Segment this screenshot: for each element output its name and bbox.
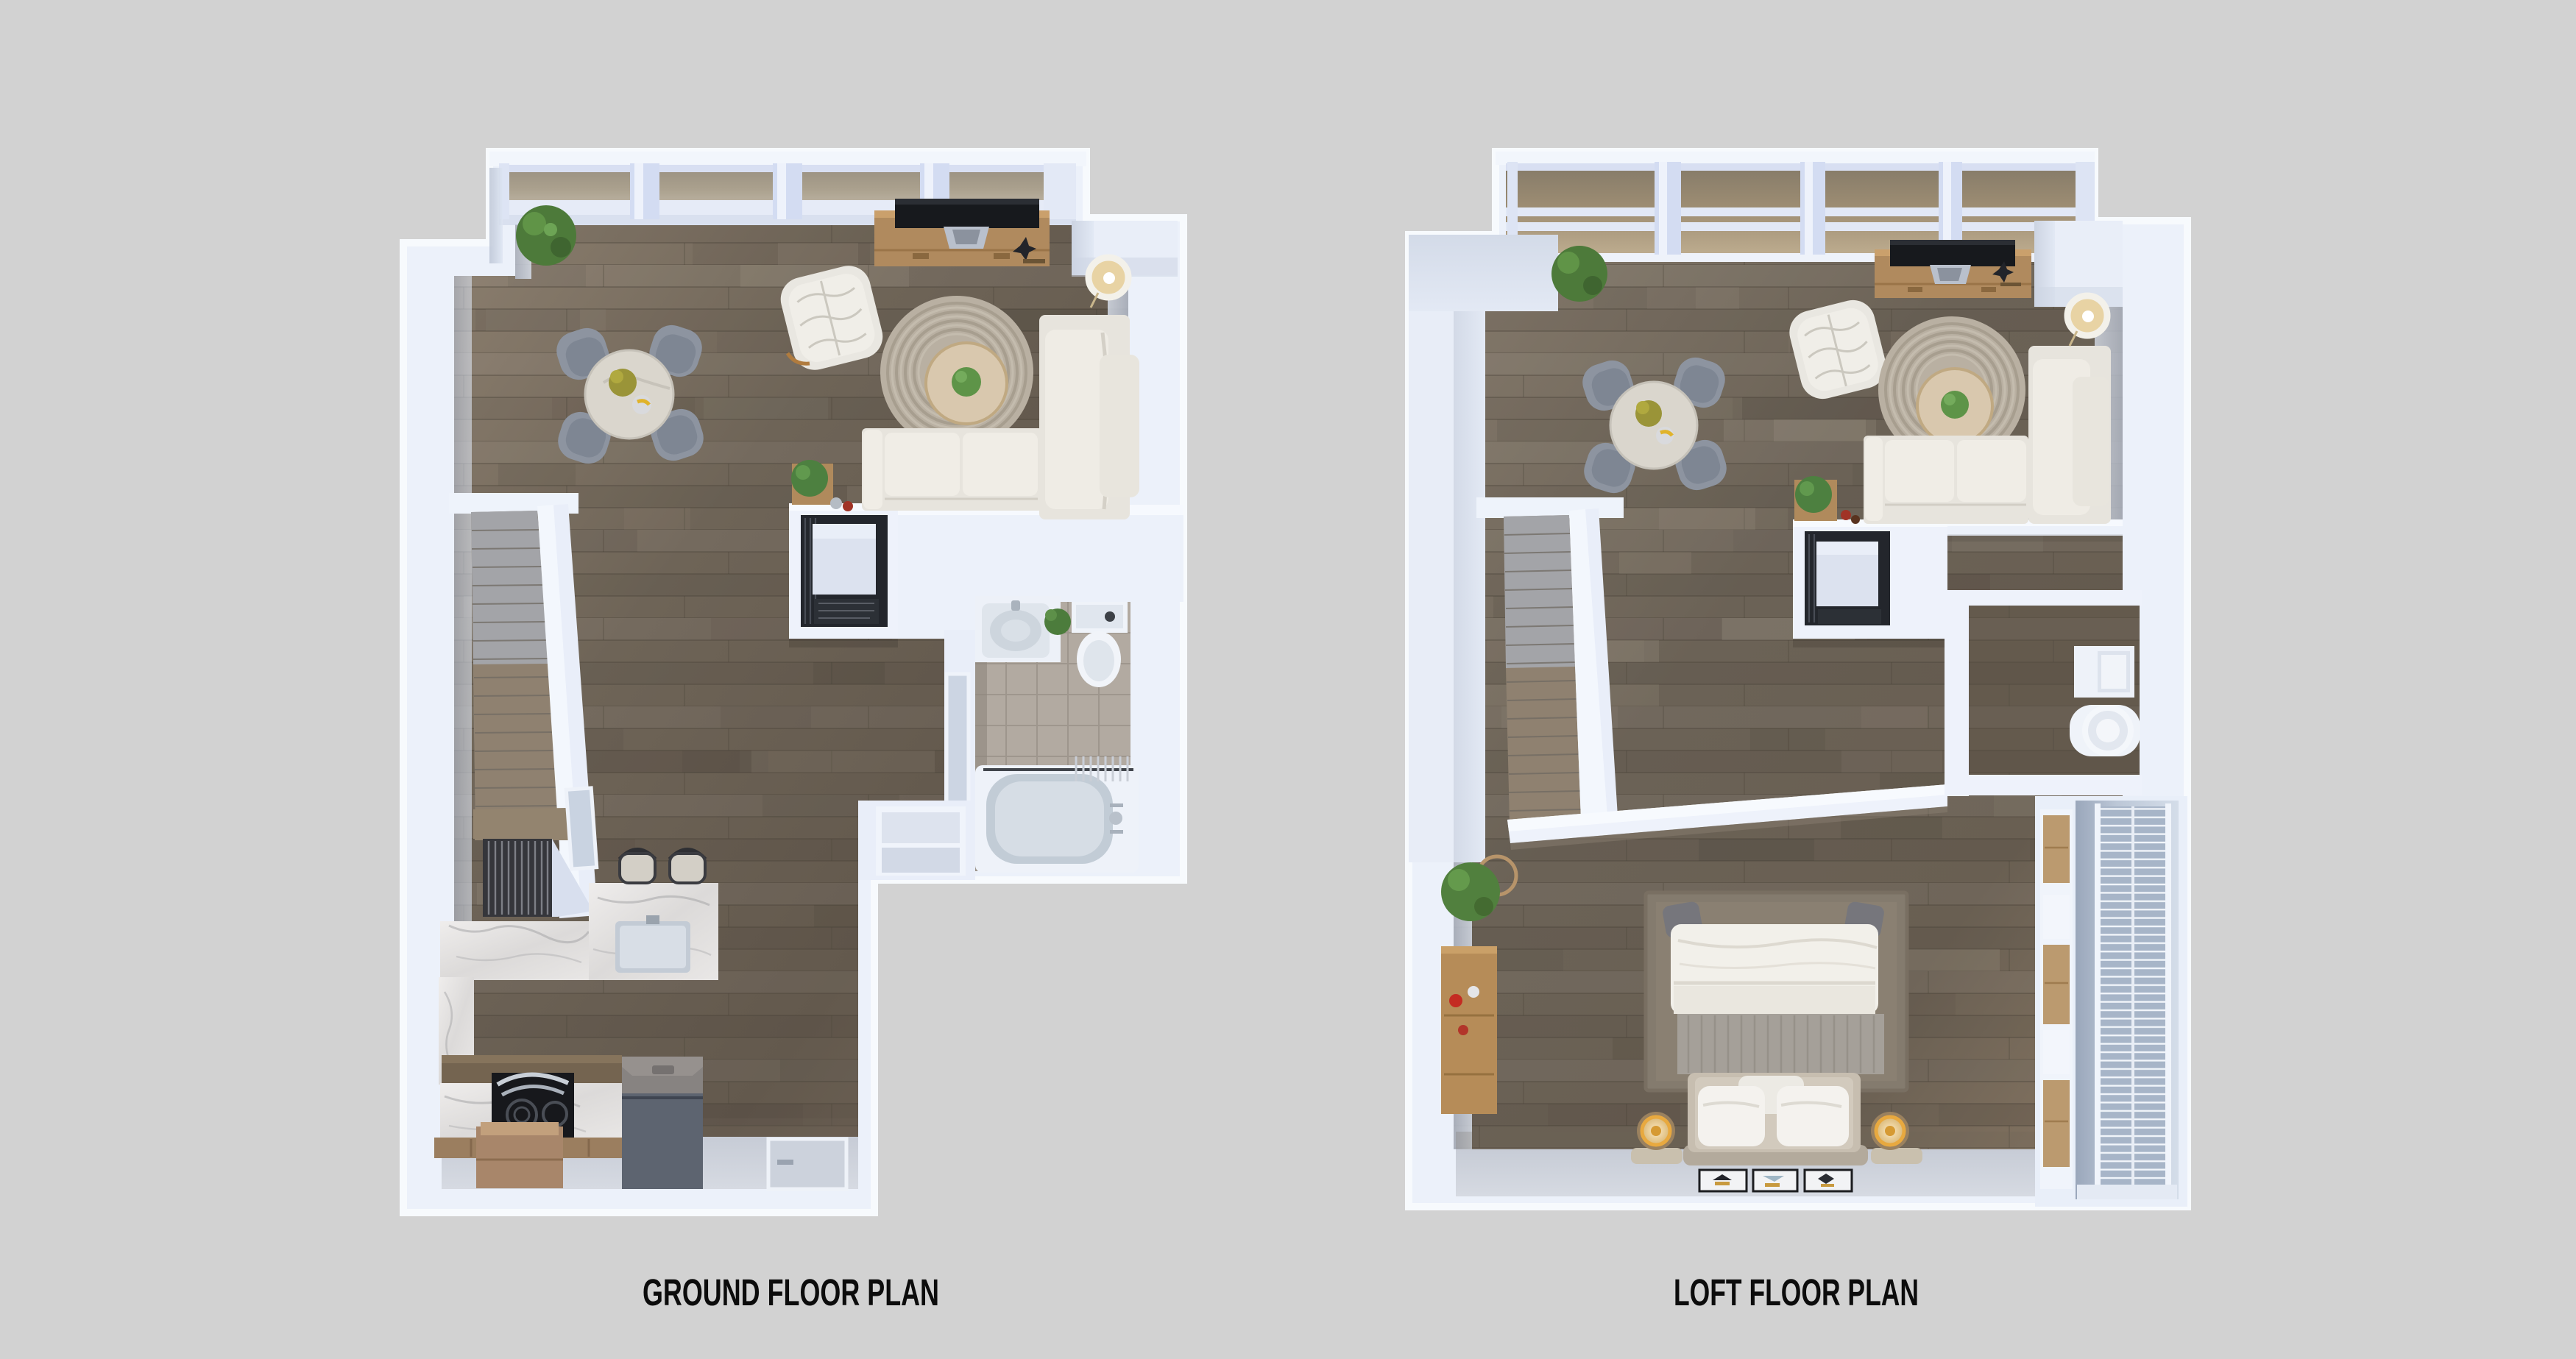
svg-text:GROUND FLOOR PLAN: GROUND FLOOR PLAN [643, 1271, 939, 1313]
svg-text:LOFT FLOOR PLAN: LOFT FLOOR PLAN [1674, 1271, 1919, 1313]
